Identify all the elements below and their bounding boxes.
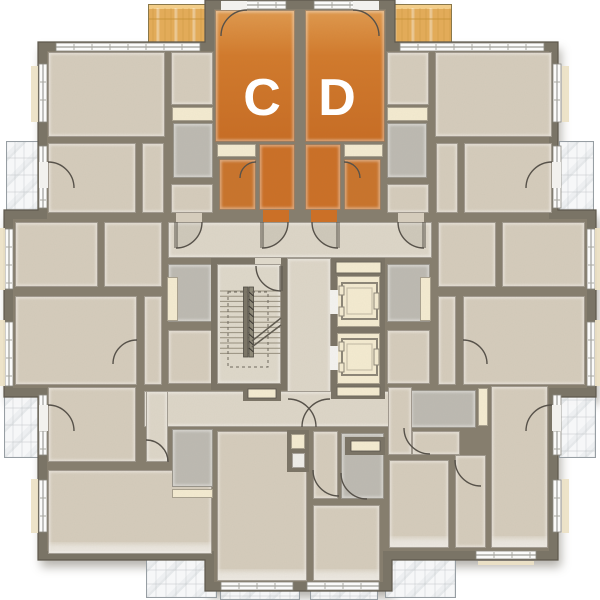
svg-text:D: D — [318, 69, 356, 127]
svg-text:C: C — [243, 69, 281, 127]
